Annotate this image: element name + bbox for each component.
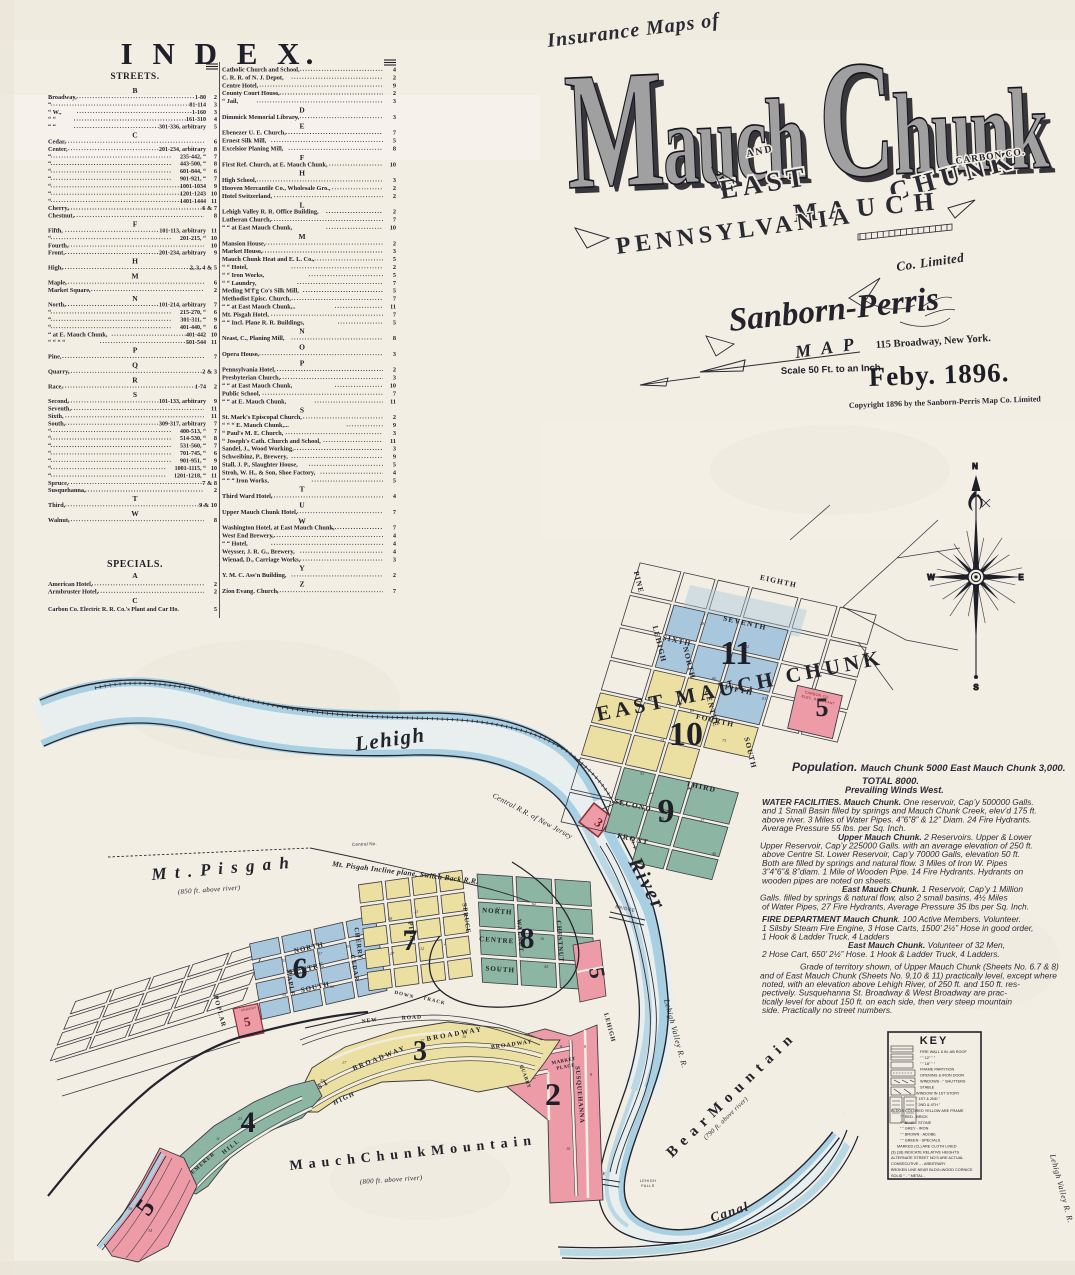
svg-text:400-513, “: 400-513, “ [180, 429, 206, 435]
svg-text:2: 2 [393, 90, 396, 97]
svg-text:Hooven Mercantile Co., Wholesa: Hooven Mercantile Co., Wholesale Gro., [222, 185, 331, 192]
svg-text:Susquehanna,: Susquehanna, [48, 487, 86, 494]
svg-text:2: 2 [545, 1076, 561, 1112]
svg-text:34: 34 [148, 1228, 152, 1233]
svg-text:9: 9 [214, 250, 217, 257]
svg-text:of Water Pipes, 27 Fire Hydran: of Water Pipes, 27 Fire Hydrants, Averag… [762, 901, 1029, 911]
svg-text:2: 2 [393, 414, 396, 421]
svg-text:“ “: “ “ [48, 124, 56, 131]
svg-text:5: 5 [393, 256, 396, 263]
svg-text:Front,: Front, [48, 250, 65, 257]
svg-text:North,: North, [48, 302, 66, 309]
svg-text:10: 10 [390, 161, 396, 168]
svg-text:32: 32 [640, 771, 644, 776]
svg-text:1201-1218, “: 1201-1218, “ [174, 473, 206, 479]
svg-text:2: 2 [214, 581, 217, 588]
svg-text:10: 10 [211, 331, 217, 338]
svg-text:Pine,: Pine, [48, 354, 62, 361]
svg-text:2: 2 [214, 589, 217, 596]
svg-text:Washington Hotel, at East Mauc: Washington Hotel, at East Mauch Chunk, [222, 525, 335, 532]
svg-text:Lutheran Church,: Lutheran Church, [222, 217, 272, 224]
svg-text:Upper Mauch Chunk Hotel,: Upper Mauch Chunk Hotel, [222, 509, 298, 516]
svg-text:H: H [132, 257, 138, 266]
svg-text:10: 10 [211, 465, 217, 472]
svg-text:“ “ Hotel,: “ “ Hotel, [222, 264, 248, 271]
svg-text:3: 3 [393, 114, 396, 121]
svg-text:11: 11 [390, 398, 396, 405]
svg-text:Central No.: Central No. [352, 841, 377, 847]
svg-text:9: 9 [214, 317, 217, 324]
svg-text:Market Square,: Market Square, [48, 287, 91, 294]
svg-text:82: 82 [745, 644, 749, 649]
svg-text:6: 6 [214, 324, 217, 331]
svg-text:8: 8 [214, 146, 217, 153]
svg-text:7: 7 [393, 280, 396, 287]
svg-text:“: “ [48, 450, 51, 457]
svg-text:11: 11 [211, 413, 217, 420]
svg-text:901-921, “: 901-921, “ [180, 177, 206, 183]
svg-text:ALTERNATE STREET NO’S ARE ACTU: ALTERNATE STREET NO’S ARE ACTUAL [891, 1156, 963, 1160]
svg-text:“ “ at East Mau: “ “ at East Mauch Chunk, [222, 383, 293, 390]
svg-text:235-442, “: 235-442, “ [180, 154, 206, 160]
svg-text:Neast, C., Planing Mill,: Neast, C., Planing Mill, [222, 335, 285, 342]
svg-text:Spruce,: Spruce, [48, 480, 69, 487]
svg-text:215-270, “: 215-270, “ [180, 310, 206, 316]
svg-text:C: C [132, 131, 137, 140]
svg-text:“ “ Incl. Plane R. R.: “ “ Incl. Plane R. R. Buildings, [222, 319, 305, 326]
svg-text:" " BROWN - ADOB: " " BROWN - ADOBE [900, 1133, 936, 1137]
svg-text:“: “ [48, 161, 51, 168]
svg-text:N: N [299, 327, 305, 336]
svg-text:Carbon Co. Electric R. R. Co.': Carbon Co. Electric R. R. Co.'s Plant an… [48, 607, 179, 613]
svg-text:Presbyterian Church,: Presbyterian Church, [222, 375, 281, 382]
svg-text:“ “ “ Iron Works: “ “ “ Iron Works, [222, 477, 269, 484]
svg-text:7: 7 [393, 525, 396, 532]
svg-text:“: “ [48, 472, 51, 479]
svg-text:10: 10 [390, 383, 396, 390]
svg-text:Broadway,: Broadway, [48, 94, 77, 101]
svg-text:Y: Y [299, 564, 305, 573]
svg-text:2: 2 [393, 74, 396, 81]
svg-text:“ “: “ “ [48, 116, 56, 123]
svg-text:101-133, arbitrary: 101-133, arbitrary [159, 399, 206, 405]
svg-text:9: 9 [393, 82, 396, 89]
svg-text:Pennsylvania Hotel,: Pennsylvania Hotel, [222, 367, 276, 374]
svg-text:M: M [298, 232, 305, 241]
svg-text:(3) (18) INDICATE RELATIVE HEI: (3) (18) INDICATE RELATIVE HEIGHTS [891, 1150, 959, 1154]
svg-text:“: “ [48, 176, 51, 183]
svg-text:2 & 3: 2 & 3 [202, 369, 217, 376]
svg-text:10: 10 [211, 242, 217, 249]
svg-text:" " GREY - IRO: " " GREY - IRON [900, 1127, 929, 1131]
svg-text:201-215, “: 201-215, “ [180, 236, 206, 242]
svg-text:11: 11 [390, 438, 396, 445]
svg-text:W: W [927, 573, 935, 582]
svg-text:34: 34 [648, 696, 652, 701]
svg-text:3: 3 [393, 351, 396, 358]
svg-text:Feby. 1896.: Feby. 1896. [868, 357, 1010, 392]
svg-text:12: 12 [420, 946, 424, 951]
svg-text:309-317, arbitrary: 309-317, arbitrary [159, 421, 206, 427]
svg-text:7: 7 [393, 588, 396, 595]
svg-text:901-951, “: 901-951, “ [180, 459, 206, 465]
svg-text:STREETS.: STREETS. [110, 72, 159, 82]
svg-text:High School,: High School, [222, 177, 257, 184]
svg-text:2: 2 [214, 383, 217, 390]
svg-text:FRAME PARTITION: FRAME PARTITION [920, 1068, 955, 1072]
svg-text:7: 7 [393, 217, 396, 224]
svg-text:" 2ND & 4TH ": " 2ND & 4TH " [916, 1103, 941, 1107]
svg-text:“ “ at East Mauch: “ “ at East Mauch Chunk,.. [222, 304, 296, 311]
svg-text:201-234, arbitrary: 201-234, arbitrary [159, 147, 206, 153]
svg-text:Fourth,: Fourth, [48, 242, 69, 249]
svg-text:11: 11 [720, 635, 752, 672]
svg-text:STABLE: STABLE [920, 1085, 935, 1089]
svg-text:SOLID " - " META: SOLID " - " METAL - [891, 1174, 926, 1178]
svg-text:“: “ [48, 435, 51, 442]
svg-text:7: 7 [393, 390, 396, 397]
svg-text:“ Joseph's Cath. Church and Sc: “ Joseph's Cath. Church and School, [222, 438, 321, 445]
svg-text:10: 10 [211, 190, 217, 197]
svg-text:Opera House,: Opera House, [222, 351, 260, 358]
svg-text:“ “ Hotel,: “ “ Hotel, [222, 541, 248, 548]
svg-text:“: “ [48, 317, 51, 324]
svg-text:11: 11 [211, 406, 217, 413]
svg-text:1-80: 1-80 [195, 95, 206, 101]
svg-text:83: 83 [690, 708, 694, 713]
svg-text:Stroh, W. H., & Son, Shoe Fact: Stroh, W. H., & Son, Shoe Factory, [222, 469, 316, 476]
svg-text:Cedar,: Cedar, [48, 138, 66, 145]
svg-text:73: 73 [722, 738, 726, 743]
svg-text:3: 3 [393, 446, 396, 453]
svg-text:" 1ST & 2ND ": " 1ST & 2ND " [916, 1097, 941, 1101]
svg-text:5: 5 [393, 477, 396, 484]
svg-text:3: 3 [393, 98, 396, 105]
svg-text:“: “ [48, 168, 51, 175]
svg-text:Mauch Chunk Heat and E. L. Co.: Mauch Chunk Heat and E. L. Co., [222, 256, 315, 263]
svg-text:First Ref. Church, at E. Mauch: First Ref. Church, at E. Mauch Chunk, [222, 161, 328, 168]
svg-text:74: 74 [660, 738, 664, 743]
svg-text:11: 11 [211, 228, 217, 235]
svg-text:“ “ “ “: “ “ “ “ [48, 339, 65, 346]
svg-text:8: 8 [393, 335, 396, 342]
svg-text:2: 2 [393, 240, 396, 247]
svg-text:501-544: 501-544 [186, 340, 206, 346]
svg-text:" " GREEN - SPECIA: " " GREEN - SPECIALS [900, 1139, 941, 1143]
svg-text:2: 2 [393, 209, 396, 216]
svg-text:5: 5 [214, 124, 217, 131]
svg-text:“ “ at E. Mauch Chun: “ “ at E. Mauch Chunk, [222, 398, 287, 405]
svg-text:401-442: 401-442 [186, 332, 206, 338]
svg-text:“: “ [48, 324, 51, 331]
svg-text:Y. M. C. Ass'n Building,: Y. M. C. Ass'n Building, [222, 572, 287, 579]
svg-text:2: 2 [214, 94, 217, 101]
svg-text:Third,: Third, [48, 502, 66, 509]
svg-text:62: 62 [532, 901, 536, 906]
svg-text:11: 11 [211, 472, 217, 479]
svg-text:5: 5 [393, 462, 396, 469]
svg-text:OPENING & IRON DOOR: OPENING & IRON DOOR [920, 1074, 964, 1078]
svg-text:Seventh,: Seventh, [48, 406, 71, 413]
svg-text:3: 3 [393, 177, 396, 184]
svg-text:101-113, arbitrary: 101-113, arbitrary [159, 229, 206, 235]
svg-text:“: “ [48, 101, 51, 108]
svg-text:A: A [132, 571, 138, 580]
svg-text:“: “ [48, 443, 51, 450]
svg-text:401-440, “: 401-440, “ [180, 325, 206, 331]
svg-text:7: 7 [214, 153, 217, 160]
svg-text:2: 2 [214, 487, 217, 494]
svg-text:Z: Z [299, 580, 304, 589]
svg-text:4: 4 [241, 1106, 256, 1139]
svg-text:Meding M'f'g Co's Silk Mill,: Meding M'f'g Co's Silk Mill, [222, 288, 299, 295]
svg-text:“ Paul's M. E. Church,: “ Paul's M. E. Church, [222, 430, 284, 437]
svg-text:" " 12" " ": " " 12" " " [920, 1056, 936, 1060]
svg-text:Sixth,: Sixth, [48, 413, 64, 420]
svg-text:Wienad, D., Carriage Works,: Wienad, D., Carriage Works, [222, 556, 301, 563]
svg-text:FALLS: FALLS [641, 1184, 654, 1188]
svg-text:C: C [132, 596, 137, 605]
svg-text:Dimmick Memorial Library,: Dimmick Memorial Library, [222, 114, 300, 121]
svg-text:South,: South, [48, 420, 66, 427]
svg-text:8: 8 [214, 161, 217, 168]
svg-text:Lehigh Valley R. R. Office Bui: Lehigh Valley R. R. Office Building, [222, 209, 319, 216]
svg-text:Weysser, J. R. G., Brewery,: Weysser, J. R. G., Brewery, [222, 548, 295, 555]
svg-text:7: 7 [393, 311, 396, 318]
svg-text:10: 10 [669, 716, 703, 753]
svg-text:Prevailing Winds West.: Prevailing Winds West. [845, 785, 944, 795]
svg-text:Third Ward Hotel,: Third Ward Hotel, [222, 493, 273, 500]
svg-text:13: 13 [414, 909, 418, 914]
svg-text:9: 9 [214, 458, 217, 465]
svg-text:“ W.,: “ W., [48, 109, 62, 116]
svg-text:Q: Q [132, 361, 138, 370]
svg-text:KEY: KEY [920, 1035, 949, 1047]
svg-text:Excelsior Planing Mill,: Excelsior Planing Mill, [222, 146, 284, 153]
svg-text:9 & 10: 9 & 10 [199, 502, 217, 509]
svg-text:“ “ “ E. Ma: “ “ “ E. Mauch Chunk,... [222, 422, 289, 429]
svg-text:Chestnut,: Chestnut, [48, 213, 74, 220]
svg-text:6: 6 [214, 309, 217, 316]
svg-text:7: 7 [393, 296, 396, 303]
svg-text:701-745, “: 701-745, “ [180, 451, 206, 457]
svg-text:Population. Mauch Chunk 5000: Population. Mauch Chunk 5000 East Mauch … [792, 760, 1065, 774]
svg-text:B: B [132, 86, 137, 95]
svg-text:“ Jail,: “ Jail, [222, 98, 239, 105]
svg-text:“: “ [48, 458, 51, 465]
svg-text:E: E [299, 121, 304, 130]
svg-text:11: 11 [211, 198, 217, 205]
svg-text:F: F [133, 220, 138, 229]
svg-text:Cherry,: Cherry, [48, 205, 69, 212]
svg-text:8: 8 [214, 435, 217, 442]
svg-text:2, 3, 4 & 5: 2, 3, 4 & 5 [190, 265, 217, 272]
svg-text:5: 5 [393, 319, 396, 326]
svg-text:P: P [133, 346, 138, 355]
svg-text:8: 8 [393, 146, 396, 153]
svg-text:Fifth,: Fifth, [48, 228, 63, 235]
svg-text:W: W [131, 509, 139, 518]
svg-text:American Hotel,: American Hotel, [48, 581, 93, 588]
svg-text:Catholic Church and School,: Catholic Church and School, [222, 67, 300, 74]
svg-text:1-74: 1-74 [195, 384, 206, 390]
svg-text:BROKEN LINE NEAR BLDG=WOOD COR: BROKEN LINE NEAR BLDG=WOOD CORNICE [891, 1168, 973, 1172]
svg-text:Public School,: Public School, [222, 390, 261, 397]
svg-text:2: 2 [393, 572, 396, 579]
svg-text:2: 2 [393, 264, 396, 271]
svg-text:side. Practically no street nu: side. Practically no street numbers. [762, 1005, 892, 1015]
svg-text:11: 11 [216, 1136, 220, 1141]
svg-text:5: 5 [214, 606, 217, 613]
svg-text:33: 33 [320, 1078, 324, 1083]
svg-text:11: 11 [390, 304, 396, 311]
svg-text:5: 5 [393, 138, 396, 145]
svg-text:2: 2 [214, 287, 217, 294]
svg-text:6: 6 [214, 138, 217, 145]
svg-text:T: T [299, 485, 304, 494]
svg-text:D: D [299, 106, 305, 115]
svg-text:“: “ [48, 465, 51, 472]
svg-text:5: 5 [393, 272, 396, 279]
svg-text:7: 7 [214, 302, 217, 309]
svg-text:ROAD: ROAD [402, 1014, 422, 1021]
svg-text:“: “ [48, 428, 51, 435]
svg-text:6: 6 [214, 450, 217, 457]
svg-text:MARKED (CL) ARE CLOTH LINED: MARKED (CL) ARE CLOTH LINED [897, 1144, 957, 1148]
svg-text:44: 44 [544, 964, 548, 969]
svg-text:N: N [972, 462, 978, 471]
svg-text:2 Hose Cart, 650’ 2½” Hose.: 2 Hose Cart, 650’ 2½” Hose. 1 Hook & Lad… [761, 949, 1000, 959]
svg-text:161-310: 161-310 [186, 117, 206, 123]
svg-text:9: 9 [393, 454, 396, 461]
svg-text:“: “ [48, 235, 51, 242]
svg-text:“: “ [48, 198, 51, 205]
svg-text:9: 9 [658, 793, 675, 830]
svg-text:E: E [1018, 573, 1024, 582]
svg-text:2: 2 [444, 941, 446, 946]
svg-text:9: 9 [214, 398, 217, 405]
svg-text:1001-1115, “: 1001-1115, “ [175, 466, 206, 472]
svg-text:WINDOWS - " SHUTTERS: WINDOWS - " SHUTTERS [920, 1080, 966, 1084]
svg-text:7: 7 [393, 130, 396, 137]
svg-text:531-560, “: 531-560, “ [180, 444, 206, 450]
svg-text:2: 2 [393, 193, 396, 200]
svg-text:H: H [299, 169, 305, 178]
svg-text:514-530, “: 514-530, “ [180, 436, 206, 442]
svg-text:P: P [300, 358, 305, 367]
svg-text:11: 11 [211, 339, 217, 346]
svg-text:7: 7 [214, 420, 217, 427]
svg-text:Armbruster Hotel,: Armbruster Hotel, [48, 589, 99, 596]
svg-text:8: 8 [214, 213, 217, 220]
svg-text:Zion Evang. Church,: Zion Evang. Church, [222, 588, 279, 595]
svg-text:301-336, arbitrary: 301-336, arbitrary [159, 125, 206, 131]
svg-text:T: T [132, 494, 137, 503]
svg-text:Walnut,: Walnut, [48, 517, 70, 524]
svg-text:54: 54 [282, 992, 286, 997]
svg-text:U: U [299, 501, 305, 510]
svg-text:LEHIGH: LEHIGH [640, 1179, 657, 1183]
svg-text:Center,: Center, [48, 146, 68, 153]
svg-text:Sandel, J., Wood Working,: Sandel, J., Wood Working, [222, 446, 294, 453]
svg-text:1001-1034: 1001-1034 [180, 184, 206, 190]
svg-text:R: R [132, 375, 138, 384]
svg-text:6: 6 [214, 168, 217, 175]
svg-text:8: 8 [214, 517, 217, 524]
svg-text:443-500, “: 443-500, “ [180, 162, 206, 168]
svg-text:“: “ [48, 183, 51, 190]
svg-text:7: 7 [214, 428, 217, 435]
svg-text:S: S [133, 390, 137, 399]
svg-text:Market House,: Market House, [222, 248, 263, 255]
svg-text:“ “ at East Mauch: “ “ at East Mauch Chunk, [222, 225, 293, 232]
svg-text:601-844, “: 601-844, “ [180, 169, 206, 175]
svg-text:3: 3 [393, 430, 396, 437]
svg-text:1401-1444: 1401-1444 [180, 199, 206, 205]
svg-text:“ “ Iron Works,: “ “ Iron Works, [222, 272, 265, 279]
svg-text:10: 10 [211, 235, 217, 242]
svg-text:“ “ Laundry,: “ “ Laundry, [222, 280, 257, 287]
svg-text:Quarry,: Quarry, [48, 369, 70, 376]
svg-text:Methodist Episc. Church,: Methodist Episc. Church, [222, 296, 291, 303]
svg-text:9: 9 [393, 422, 396, 429]
svg-text:3: 3 [393, 556, 396, 563]
svg-text:“: “ [48, 190, 51, 197]
svg-text:81-114: 81-114 [189, 102, 206, 108]
svg-text:Centre Hotel,: Centre Hotel, [222, 82, 259, 89]
svg-text:St. Mark's Episcopal Church,: St. Mark's Episcopal Church, [222, 414, 302, 421]
svg-text:" " 18" " ": " " 18" " " [920, 1062, 936, 1066]
svg-text:“ at E. Mauch Chunk,: “ at E. Mauch Chunk, [48, 331, 108, 338]
svg-text:3: 3 [214, 101, 217, 108]
svg-text:1201-1243: 1201-1243 [180, 191, 206, 197]
svg-text:FIRE WALL 6 IN. AB ROOF: FIRE WALL 6 IN. AB ROOF [920, 1050, 967, 1054]
svg-text:CONSECUTIVE - - ARBIT: CONSECUTIVE - - ARBITRARY [891, 1162, 946, 1166]
svg-text:S: S [973, 683, 979, 692]
svg-text:Race,: Race, [48, 383, 63, 390]
svg-text:WINDOW IN 1ST STORY: WINDOW IN 1ST STORY [916, 1091, 960, 1095]
svg-text:Mansion House,: Mansion House, [222, 240, 266, 247]
svg-text:1-160: 1-160 [192, 110, 206, 116]
svg-text:2: 2 [393, 185, 396, 192]
svg-text:Hotel Switzerland,: Hotel Switzerland, [222, 193, 272, 200]
svg-text:Maple,: Maple, [48, 279, 67, 286]
svg-text:“: “ [48, 153, 51, 160]
svg-text:6 & 7: 6 & 7 [202, 205, 217, 212]
svg-text:3: 3 [393, 248, 396, 255]
svg-text:SPECIALS.: SPECIALS. [107, 559, 163, 570]
svg-text:7: 7 [214, 176, 217, 183]
svg-text:M: M [131, 272, 138, 281]
svg-text:1: 1 [498, 968, 500, 973]
svg-text:“: “ [48, 309, 51, 316]
svg-text:Schweibinz, P., Brewery,: Schweibinz, P., Brewery, [222, 454, 288, 461]
svg-text:7: 7 [214, 443, 217, 450]
svg-text:O: O [299, 343, 305, 352]
svg-text:Second,: Second, [48, 398, 69, 405]
svg-text:Ebenezer U. E. Church,: Ebenezer U. E. Church, [222, 130, 286, 137]
svg-text:High,: High, [48, 265, 63, 272]
svg-text:23: 23 [238, 1116, 242, 1121]
svg-text:N: N [132, 294, 138, 303]
svg-text:6: 6 [214, 279, 217, 286]
svg-text:101-214, arbitrary: 101-214, arbitrary [159, 303, 206, 309]
svg-text:61: 61 [496, 906, 500, 911]
svg-text:3: 3 [393, 375, 396, 382]
svg-text:81: 81 [762, 696, 766, 701]
svg-text:West End Brewery,: West End Brewery, [222, 533, 274, 540]
svg-text:55: 55 [282, 958, 286, 963]
